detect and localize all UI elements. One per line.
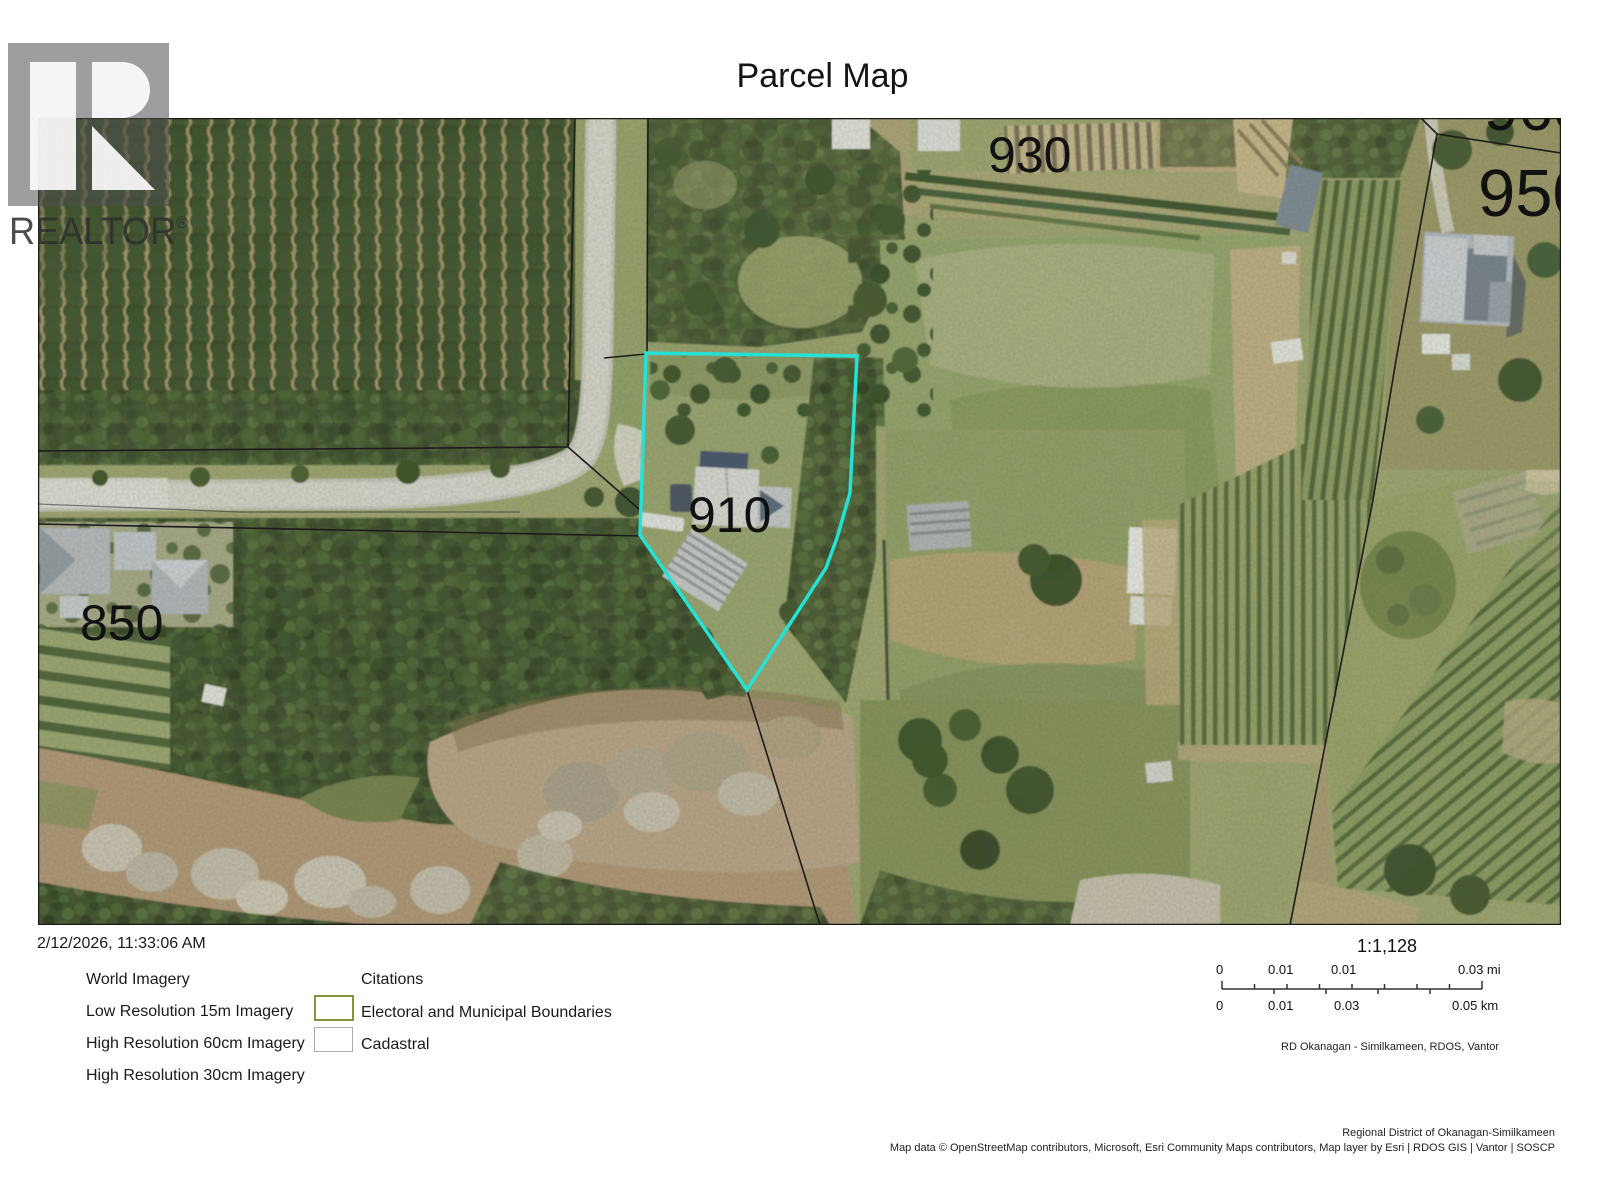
svg-text:950: 950: [1478, 156, 1561, 231]
svg-text:930: 930: [988, 127, 1071, 183]
svg-text:960: 960: [1484, 118, 1561, 144]
svg-text:910: 910: [688, 487, 771, 543]
svg-text:850: 850: [80, 595, 163, 651]
